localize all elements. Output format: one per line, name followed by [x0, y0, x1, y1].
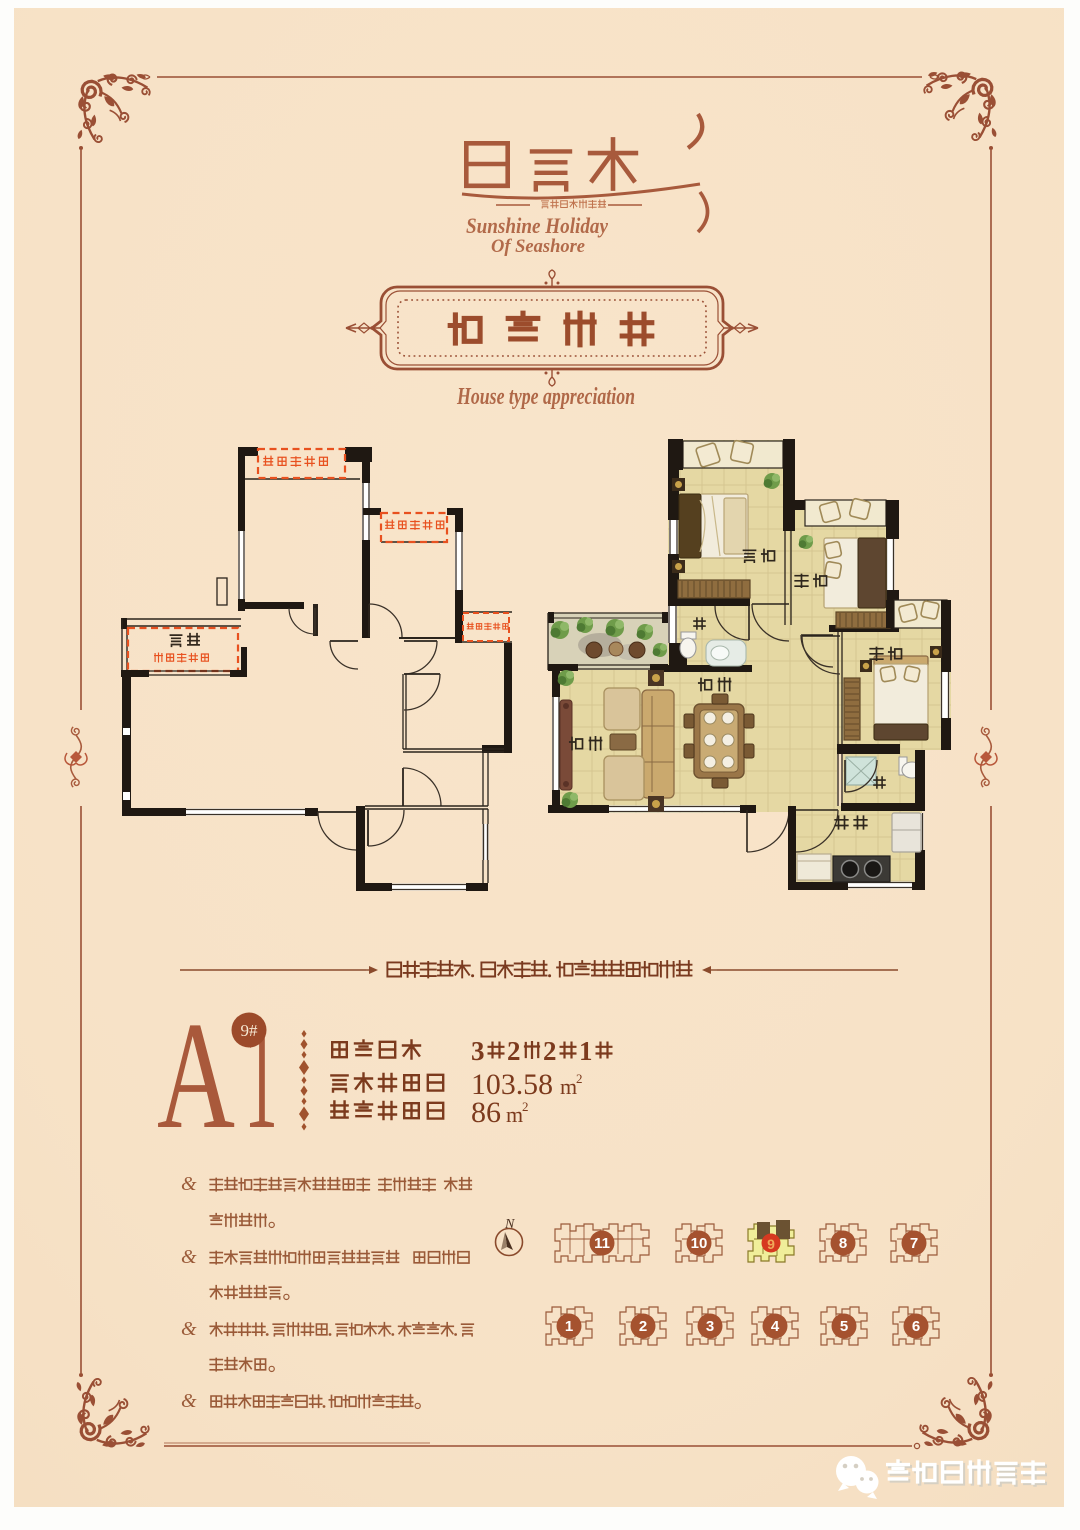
svg-text:2: 2	[522, 1099, 529, 1114]
svg-text:86: 86	[471, 1096, 501, 1129]
svg-text:3: 3	[471, 1036, 485, 1066]
svg-text:9: 9	[767, 1236, 775, 1252]
svg-text:m: m	[506, 1102, 523, 1127]
svg-text:&: &	[181, 1246, 197, 1268]
svg-text:7: 7	[910, 1235, 918, 1252]
svg-text:&: &	[181, 1390, 197, 1412]
svg-text:Of Seashore: Of Seashore	[491, 236, 586, 257]
svg-text:House type appreciation: House type appreciation	[456, 384, 635, 410]
svg-text:5: 5	[840, 1318, 848, 1335]
svg-text:6: 6	[912, 1318, 920, 1335]
svg-text:10: 10	[691, 1235, 708, 1252]
svg-text:Sunshine Holiday: Sunshine Holiday	[466, 213, 608, 238]
svg-text:N: N	[504, 1217, 515, 1232]
svg-text:4: 4	[771, 1318, 780, 1335]
svg-text:11: 11	[594, 1235, 610, 1252]
svg-text:A: A	[157, 991, 235, 1161]
svg-text:m: m	[560, 1074, 577, 1099]
svg-text:2: 2	[507, 1036, 521, 1066]
svg-text:3: 3	[706, 1318, 714, 1335]
svg-text:2: 2	[543, 1036, 557, 1066]
svg-text:8: 8	[839, 1235, 847, 1252]
svg-text:1: 1	[565, 1318, 573, 1335]
svg-text:&: &	[181, 1318, 197, 1340]
svg-text:9#: 9#	[241, 1021, 259, 1040]
svg-text:2: 2	[639, 1318, 647, 1335]
svg-text:2: 2	[576, 1071, 583, 1086]
svg-text:&: &	[181, 1173, 197, 1195]
svg-text:1: 1	[579, 1036, 593, 1066]
